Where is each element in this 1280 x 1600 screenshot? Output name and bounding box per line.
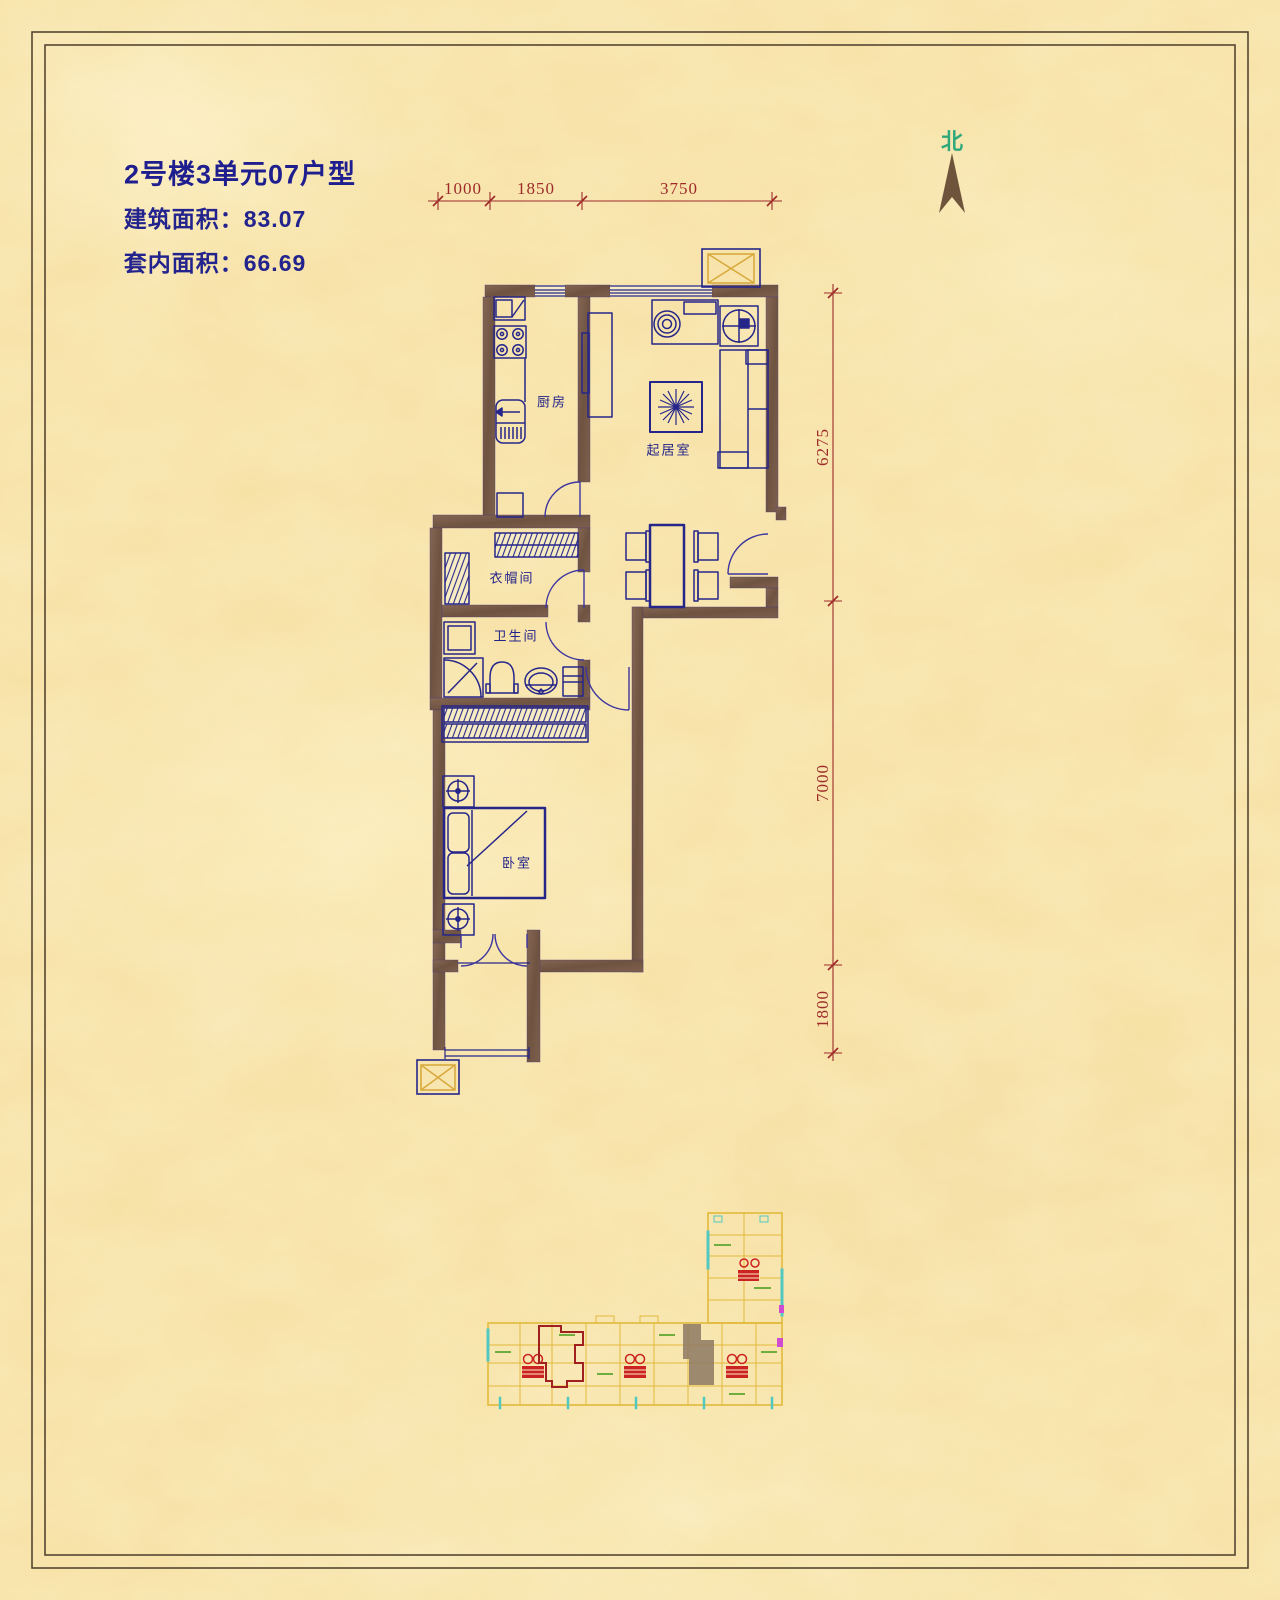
room-label-kitchen: 厨房 (537, 392, 567, 411)
dim-right-6275: 6275 (813, 428, 833, 466)
building-area-text: 建筑面积：83.07 (124, 200, 307, 234)
dim-right-1800: 1800 (813, 990, 833, 1028)
room-label-living: 起居室 (646, 440, 691, 459)
window-top-1 (535, 285, 565, 297)
dim-top-3750: 3750 (660, 179, 698, 199)
inner-area-text: 套内面积：66.69 (124, 244, 307, 278)
window-top-2 (610, 285, 712, 297)
room-label-bathroom: 卫生间 (493, 626, 538, 645)
north-label: 北 (941, 124, 963, 156)
dim-right-7000: 7000 (813, 764, 833, 802)
room-label-bedroom: 卧室 (502, 853, 532, 872)
floorplan-page: { "header": { "title": "2号楼3单元07户型", "bu… (0, 0, 1280, 1600)
plan-title: 2号楼3单元07户型 (124, 153, 356, 192)
dim-top-1000: 1000 (444, 179, 482, 199)
cloakroom-closet-left (445, 553, 469, 604)
floorplan-canvas (0, 0, 1280, 1600)
plant-icon (658, 389, 694, 425)
dim-top-1850: 1850 (517, 179, 555, 199)
bedroom-closet (442, 706, 588, 742)
room-label-cloakroom: 衣帽间 (489, 568, 534, 587)
